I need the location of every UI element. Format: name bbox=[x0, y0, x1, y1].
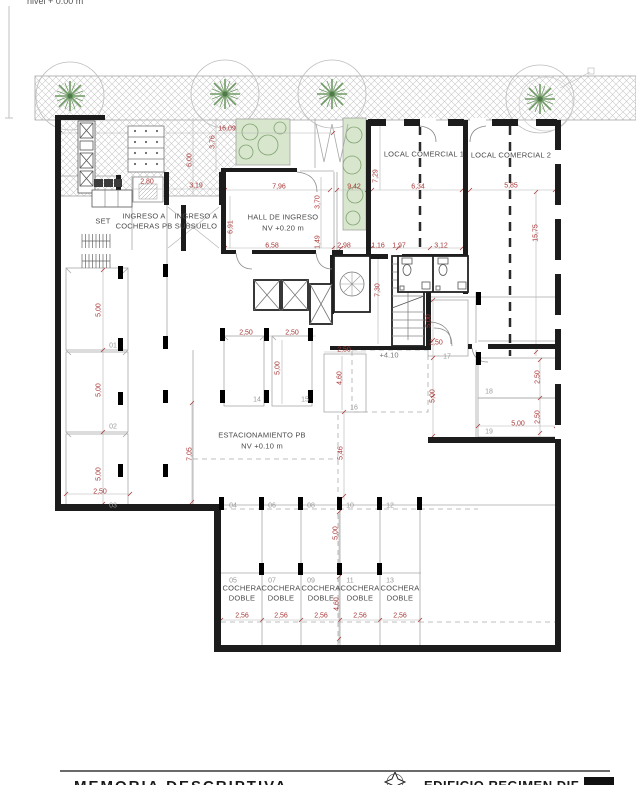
dim-label: 2,50 bbox=[93, 489, 107, 496]
stall-number: 16 bbox=[350, 405, 358, 412]
room-label: COCHERA bbox=[302, 584, 341, 592]
floorplan-sheet: SETINGRESO ACOCHERAS PBINGRESO ASUBSUELO… bbox=[0, 0, 636, 785]
footer-logo-box bbox=[584, 777, 614, 785]
dim-label: 7,29 bbox=[373, 169, 380, 183]
dim-label: 5,00 bbox=[511, 421, 525, 428]
room-label: NV +0.20 m bbox=[262, 224, 304, 232]
room-label: DOBLE bbox=[268, 594, 294, 602]
dim-label: 7,05 bbox=[187, 447, 194, 461]
dim-label: 2,56 bbox=[314, 613, 328, 620]
stall-number: 02 bbox=[109, 424, 117, 431]
dim-label: 5,00 bbox=[430, 389, 437, 403]
stall-number: 08 bbox=[307, 503, 315, 510]
room-label: COCHERAS PB bbox=[116, 222, 173, 230]
dim-label: 1,49 bbox=[315, 235, 322, 249]
room-label: HALL DE INGRESO bbox=[248, 213, 319, 221]
dim-label: 2,50 bbox=[285, 330, 299, 337]
room-label: SET bbox=[95, 217, 110, 225]
stall-number: 15 bbox=[301, 397, 309, 404]
room-label: LOCAL COMERCIAL 2 bbox=[471, 151, 551, 159]
stall-number: 17 bbox=[443, 354, 451, 361]
stall-number: 13 bbox=[386, 578, 394, 585]
stall-number: 01 bbox=[109, 343, 117, 350]
footer-rule bbox=[60, 770, 610, 772]
dim-label: 2,50 bbox=[239, 330, 253, 337]
stall-number: 11 bbox=[346, 578, 353, 585]
stall-number: 03 bbox=[109, 503, 117, 510]
dim-label: 4,60 bbox=[337, 371, 344, 385]
dim-label: 3,12 bbox=[434, 243, 448, 250]
dim-label: 3,70 bbox=[315, 195, 322, 209]
dim-label: 2,50 bbox=[429, 340, 443, 347]
dim-label: 6,00 bbox=[187, 153, 194, 167]
stall-number: 18 bbox=[485, 389, 493, 396]
stall-number: 06 bbox=[268, 503, 276, 510]
dim-label: 2,56 bbox=[353, 613, 367, 620]
dim-label: 16,09 bbox=[218, 126, 236, 133]
dim-label: 2,50 bbox=[535, 410, 542, 424]
dim-label: 2,56 bbox=[274, 613, 288, 620]
footer-right-title: EDIFICIO REGIMEN DIF bbox=[424, 778, 579, 785]
room-label: NV +0.10 m bbox=[241, 442, 283, 450]
dim-label: 4,60 bbox=[334, 597, 341, 611]
dim-label: 7,30 bbox=[375, 283, 382, 297]
stall-number: 14 bbox=[253, 397, 261, 404]
room-label: SUBSUELO bbox=[175, 222, 217, 230]
stall-number: 05 bbox=[229, 578, 237, 585]
dim-label: 3,19 bbox=[189, 183, 203, 190]
dim-label: 1,97 bbox=[392, 243, 406, 250]
room-label: INGRESO A bbox=[122, 212, 165, 220]
room-label: DOBLE bbox=[229, 594, 255, 602]
room-label: COCHERA bbox=[341, 584, 380, 592]
dim-label: 5,00 bbox=[96, 467, 103, 481]
room-label: COCHERA bbox=[262, 584, 301, 592]
dim-label: 2,98 bbox=[337, 243, 351, 250]
dim-label: 1,16 bbox=[371, 243, 385, 250]
dim-label: 2,56 bbox=[393, 613, 407, 620]
room-label: COCHERA bbox=[381, 584, 420, 592]
room-label: ESTACIONAMIENTO PB bbox=[218, 431, 306, 439]
dim-label: 9,42 bbox=[347, 184, 361, 191]
dim-label: 5,00 bbox=[96, 383, 103, 397]
stall-number: 04 bbox=[229, 503, 237, 510]
dim-label: 2,56 bbox=[235, 613, 249, 620]
dim-label: 2,50 bbox=[337, 347, 351, 354]
dim-label: 5,85 bbox=[504, 183, 518, 190]
plan-labels: SETINGRESO ACOCHERAS PBINGRESO ASUBSUELO… bbox=[0, 0, 636, 785]
footer-left-title: MEMORIA DESCRIPTIVA bbox=[74, 778, 288, 785]
stall-number: 07 bbox=[268, 578, 276, 585]
room-label: DOBLE bbox=[308, 594, 334, 602]
room-label: DOBLE bbox=[387, 594, 413, 602]
dim-label: 6,58 bbox=[265, 243, 279, 250]
dim-label: 7,96 bbox=[272, 184, 286, 191]
dim-label: 5,00 bbox=[333, 526, 340, 540]
dim-label: 5,46 bbox=[338, 446, 345, 460]
dim-label: 6,91 bbox=[228, 220, 235, 234]
room-label: LOCAL COMERCIAL 1 bbox=[384, 150, 464, 158]
dim-label: 3,76 bbox=[210, 135, 217, 149]
room-label: INGRESO A bbox=[174, 212, 217, 220]
room-label: DOBLE bbox=[347, 594, 373, 602]
stall-number: 12 bbox=[386, 503, 394, 510]
dim-label: 2,50 bbox=[535, 370, 542, 384]
dim-label: 5,00 bbox=[426, 314, 433, 328]
dim-label: 5,00 bbox=[275, 361, 282, 375]
stall-number: 19 bbox=[485, 429, 493, 436]
room-label: COCHERA bbox=[223, 584, 262, 592]
dim-label: 5,00 bbox=[96, 303, 103, 317]
dim-label: 2,80 bbox=[140, 179, 154, 186]
stall-number: 10 bbox=[346, 503, 354, 510]
dim-label: 6,34 bbox=[411, 184, 425, 191]
stall-number: 09 bbox=[307, 578, 315, 585]
dim-label: 15,75 bbox=[533, 224, 540, 242]
